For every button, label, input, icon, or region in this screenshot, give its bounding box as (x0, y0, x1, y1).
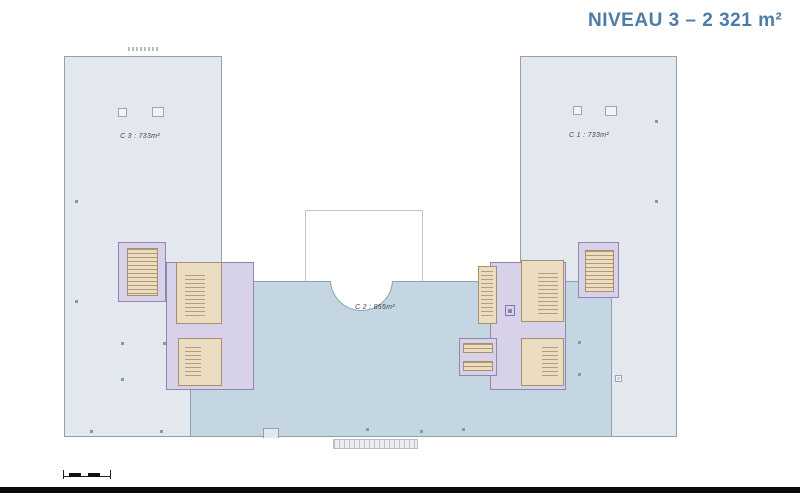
core-right-vertical (478, 266, 497, 324)
stair-left-main (185, 275, 205, 317)
core-left-lower (178, 338, 222, 386)
core-left-stairbox (118, 242, 166, 302)
stair-right-outer (585, 250, 614, 292)
zone-label-c1: C 1 : 733m² (544, 132, 634, 139)
footer-strip (0, 487, 800, 493)
column-dot (90, 430, 93, 433)
column-square (152, 107, 164, 117)
column-dot (578, 373, 581, 376)
column-dot (420, 430, 423, 433)
entry-steps (333, 439, 418, 449)
column-dot (75, 300, 78, 303)
column-square (573, 106, 582, 115)
column-square (615, 375, 622, 382)
core-right-stairbox (578, 242, 619, 298)
floorplan-canvas: NIVEAU 3 – 2 321 m² C 3 : 733m² C 2 : 85… (0, 0, 800, 493)
page-title: NIVEAU 3 – 2 321 m² (588, 10, 788, 32)
scale-bar-segment (69, 473, 81, 477)
locker-row-1 (463, 343, 493, 353)
column-dot (160, 430, 163, 433)
column-dot (121, 342, 124, 345)
stair-right-vertical (481, 271, 493, 319)
column-dot (121, 378, 124, 381)
stair-left-lower (185, 347, 201, 377)
stair-left-outer (127, 248, 158, 296)
zone-label-c3: C 3 : 733m² (95, 133, 185, 140)
core-right-lower (521, 338, 564, 386)
scale-bar (63, 470, 111, 479)
column-square (118, 108, 127, 117)
column-dot (655, 120, 658, 123)
stair-right-lower (542, 347, 558, 377)
zone-label-c2: C 2 : 855m² (330, 304, 420, 311)
column-dot (655, 200, 658, 203)
stair-right-main (538, 273, 558, 315)
column-square (605, 106, 617, 116)
column-dot (578, 341, 581, 344)
lift-symbol-icon (505, 305, 515, 316)
column-dot (163, 342, 166, 345)
wing-top-annotation (128, 47, 160, 51)
core-left-main (176, 262, 222, 324)
scale-bar-segment (88, 473, 100, 477)
facade-notch (263, 428, 279, 438)
core-right-lockers (459, 338, 497, 376)
column-dot (366, 428, 369, 431)
canopy-outline (305, 210, 423, 281)
column-dot (75, 200, 78, 203)
locker-row-2 (463, 361, 493, 371)
column-dot (462, 428, 465, 431)
core-right-main (521, 260, 564, 322)
